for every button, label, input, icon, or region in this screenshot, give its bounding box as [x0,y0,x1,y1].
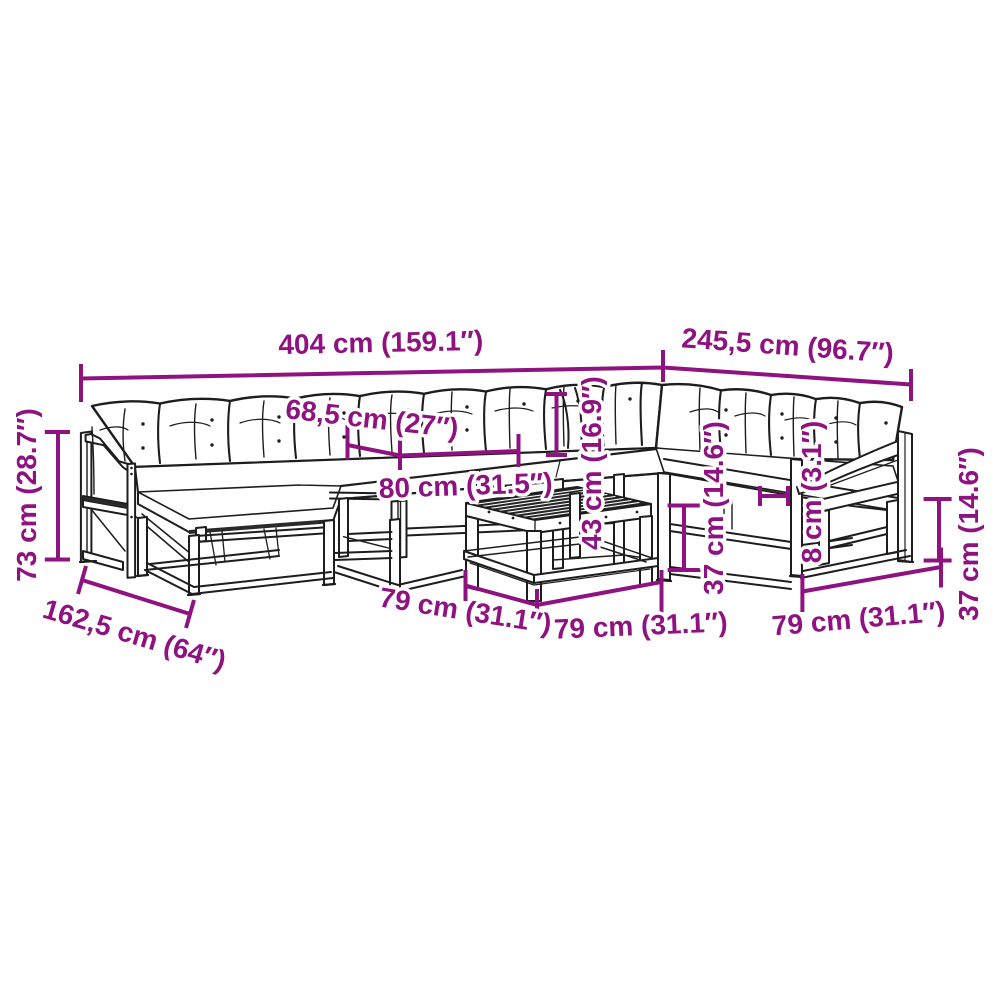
svg-text:79 cm (31.1″): 79 cm (31.1″) [553,606,728,645]
svg-text:162,5 cm (64″): 162,5 cm (64″) [39,593,229,676]
svg-text:404 cm (159.1″): 404 cm (159.1″) [278,325,483,360]
svg-text:245,5 cm (96.7″): 245,5 cm (96.7″) [681,322,895,368]
svg-text:43 cm (16.9″): 43 cm (16.9″) [576,376,607,550]
svg-text:37 cm (14.6″): 37 cm (14.6″) [953,447,984,621]
svg-text:37 cm (14.6″): 37 cm (14.6″) [698,421,729,595]
svg-text:80 cm (31.5″): 80 cm (31.5″) [378,467,553,504]
svg-text:8 cm (3.1″): 8 cm (3.1″) [796,421,827,564]
svg-text:79 cm (31.1″): 79 cm (31.1″) [771,596,947,642]
svg-text:73 cm (28.7″): 73 cm (28.7″) [11,408,42,582]
